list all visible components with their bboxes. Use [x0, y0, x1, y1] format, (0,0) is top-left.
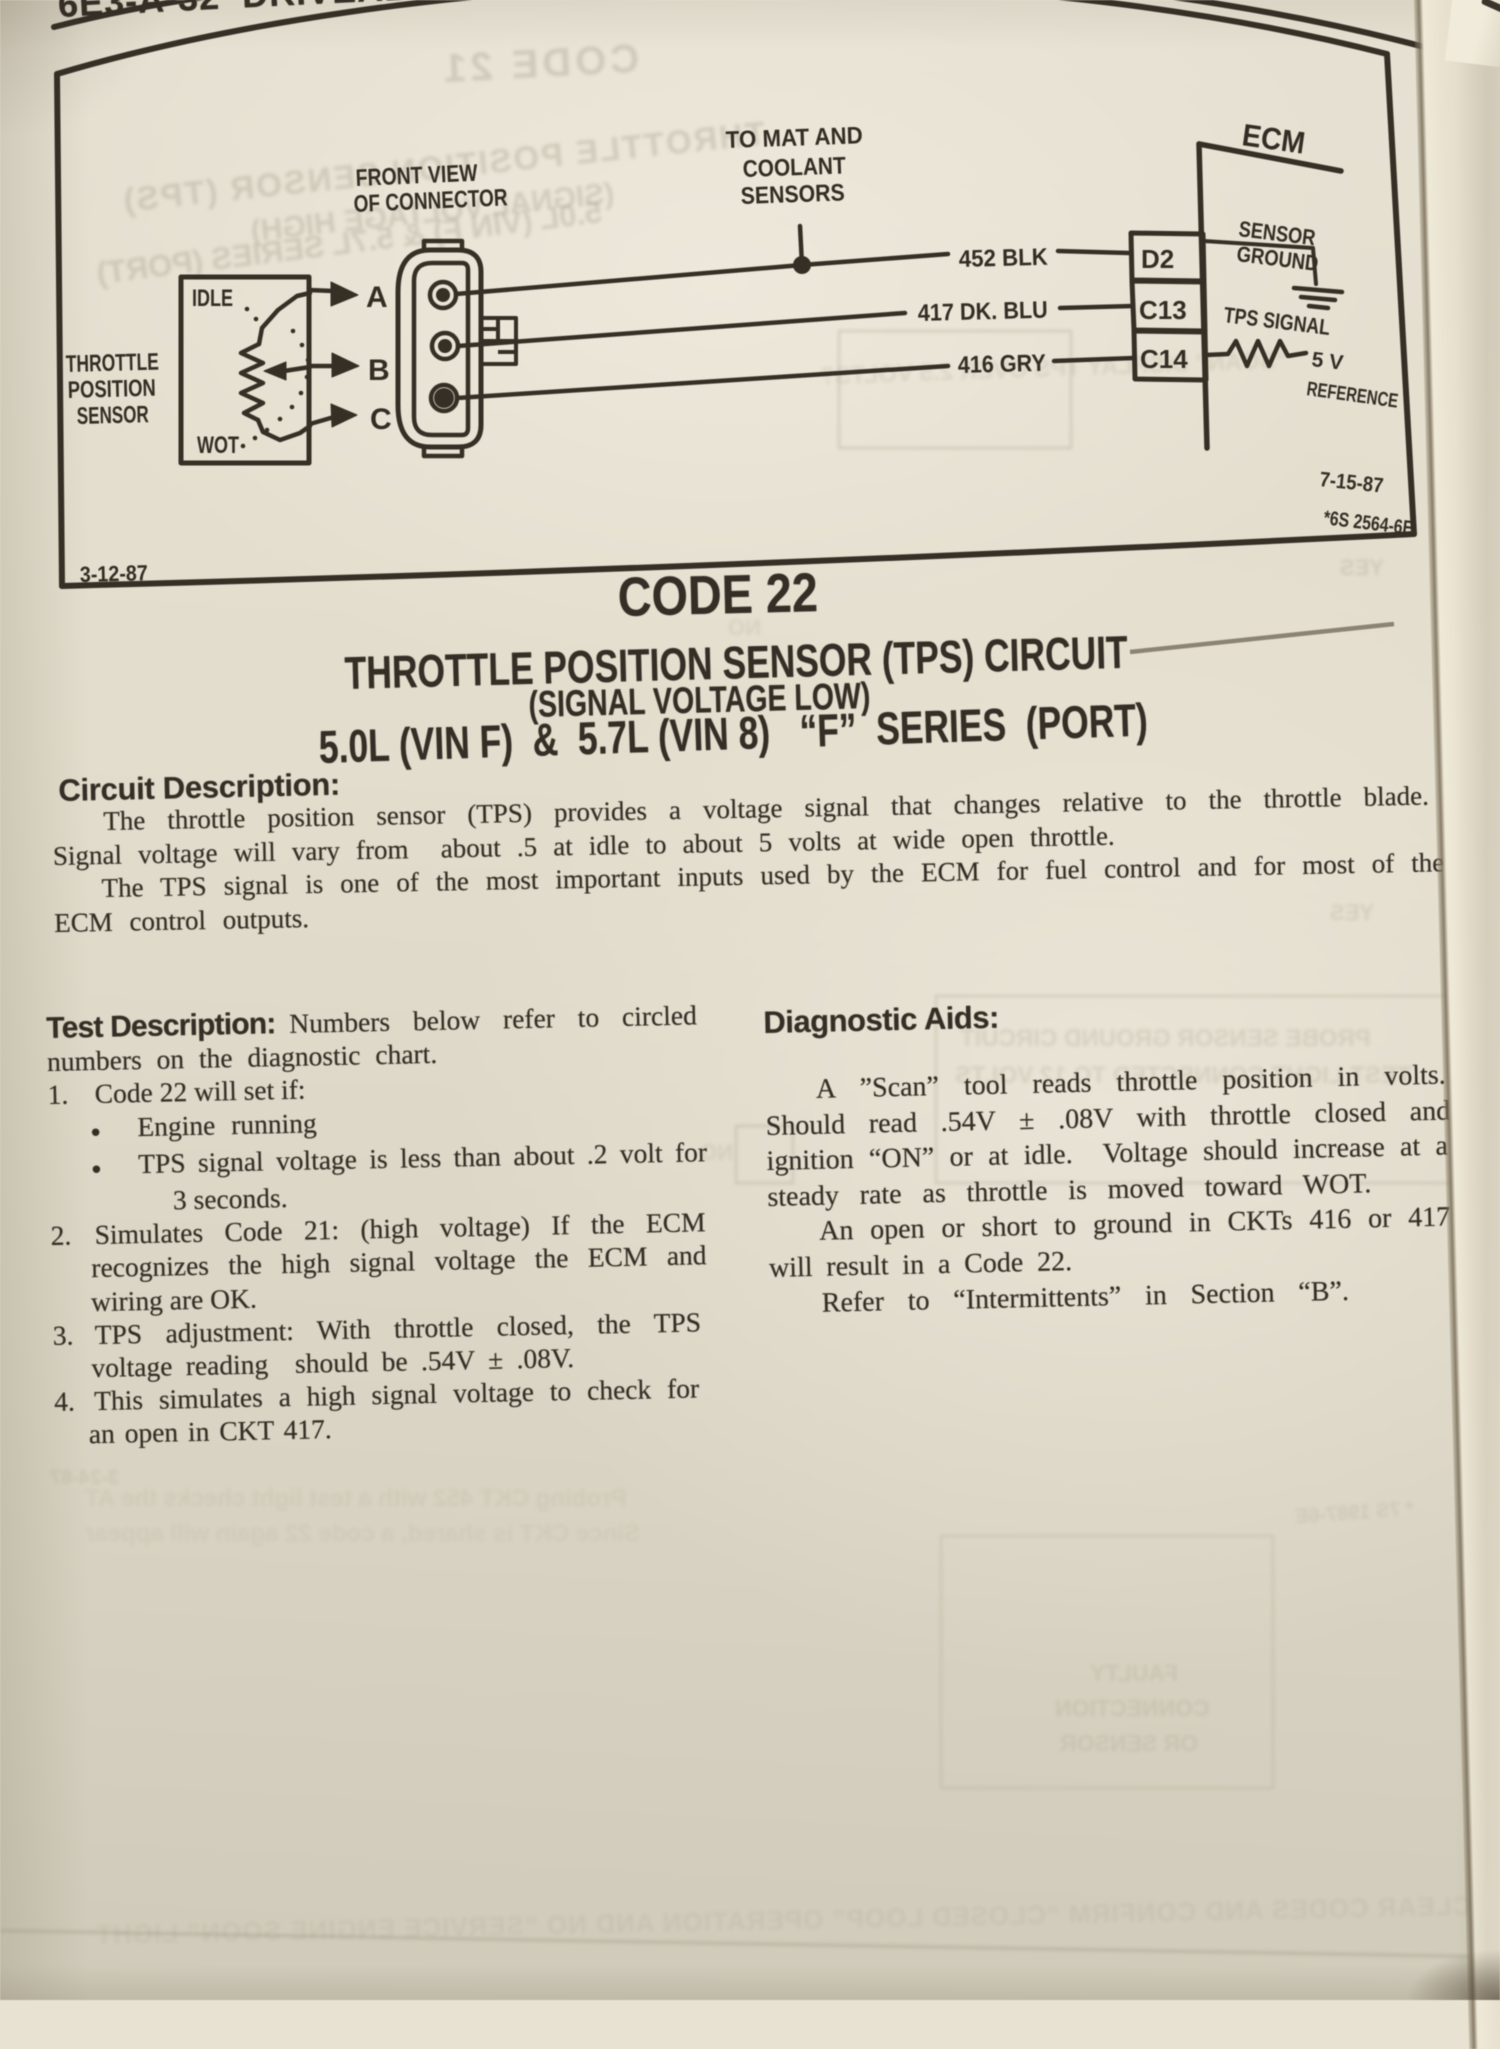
- svg-text:417 DK. BLU: 417 DK. BLU: [917, 297, 1048, 327]
- svg-text:SENSOR: SENSOR: [76, 401, 149, 430]
- svg-text:IDLE: IDLE: [192, 285, 233, 312]
- svg-text:5 V: 5 V: [1310, 348, 1344, 375]
- svg-text:THROTTLE: THROTTLE: [65, 349, 159, 378]
- svg-text:SENSORS: SENSORS: [740, 179, 845, 210]
- svg-text:416 GRY: 416 GRY: [957, 350, 1046, 379]
- svg-text:B: B: [368, 354, 390, 387]
- svg-text:POSITION: POSITION: [67, 375, 156, 404]
- svg-text:A: A: [366, 281, 388, 314]
- svg-text:7-15-87: 7-15-87: [1318, 468, 1384, 498]
- svg-text:WOT: WOT: [197, 432, 239, 459]
- svg-text:REFERENCE: REFERENCE: [1305, 378, 1399, 413]
- svg-text:TO MAT AND: TO MAT AND: [725, 122, 863, 154]
- svg-text:3-12-87: 3-12-87: [79, 560, 148, 587]
- svg-text:OF CONNECTOR: OF CONNECTOR: [353, 184, 508, 218]
- svg-text:D2: D2: [1141, 244, 1174, 274]
- svg-text:C13: C13: [1139, 295, 1187, 325]
- svg-text:C: C: [370, 403, 392, 436]
- svg-text:C14: C14: [1140, 344, 1188, 374]
- svg-text:452 BLK: 452 BLK: [958, 244, 1048, 273]
- svg-text:COOLANT: COOLANT: [742, 152, 846, 183]
